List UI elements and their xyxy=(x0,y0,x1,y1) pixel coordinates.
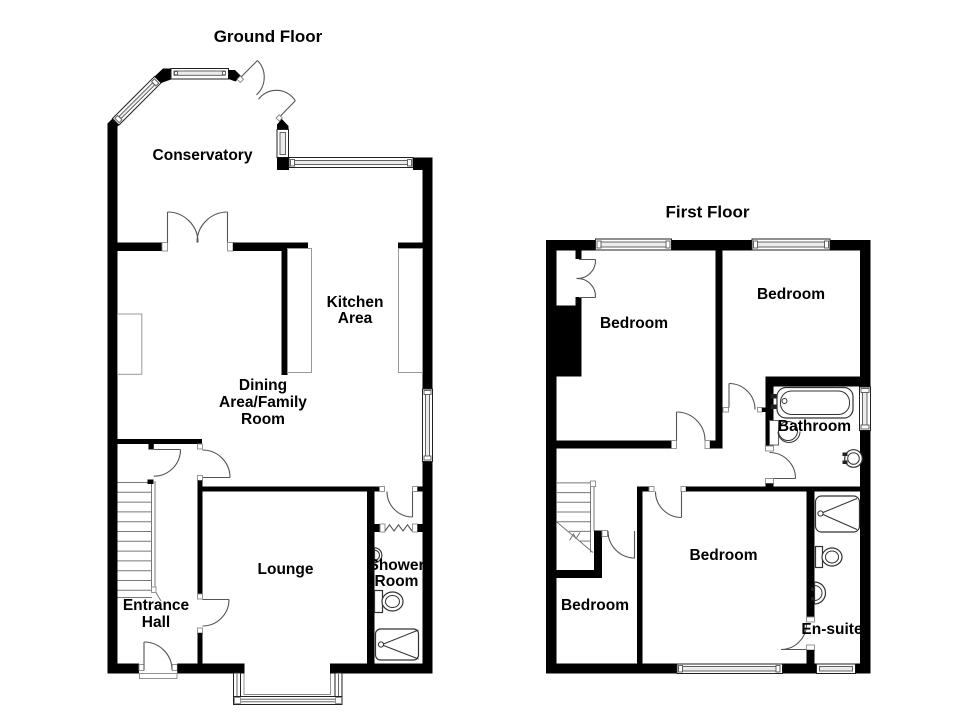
svg-text:Shower: Shower xyxy=(369,557,425,574)
svg-text:Room: Room xyxy=(375,573,419,590)
svg-text:Area/Family: Area/Family xyxy=(219,394,307,411)
svg-text:Dining: Dining xyxy=(239,377,287,394)
svg-text:Bedroom: Bedroom xyxy=(689,547,757,564)
svg-text:Bathroom: Bathroom xyxy=(778,418,851,435)
svg-text:First Floor: First Floor xyxy=(665,203,749,222)
svg-text:Conservatory: Conservatory xyxy=(153,147,253,164)
svg-text:Hall: Hall xyxy=(142,614,170,631)
svg-text:Room: Room xyxy=(241,411,285,428)
svg-text:En-suite: En-suite xyxy=(801,621,863,638)
svg-text:Kitchen: Kitchen xyxy=(327,294,384,311)
svg-text:Bedroom: Bedroom xyxy=(561,597,629,614)
svg-text:Entrance: Entrance xyxy=(123,597,190,614)
svg-text:Bedroom: Bedroom xyxy=(600,315,668,332)
svg-text:Lounge: Lounge xyxy=(258,561,314,578)
svg-text:Bedroom: Bedroom xyxy=(757,286,825,303)
svg-text:Area: Area xyxy=(338,310,373,327)
svg-text:Ground Floor: Ground Floor xyxy=(214,27,323,46)
